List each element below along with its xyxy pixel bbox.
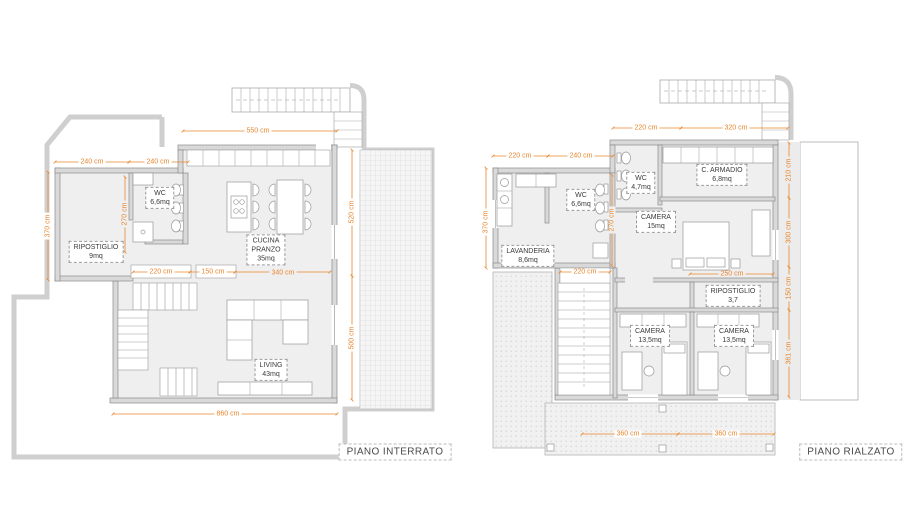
room-name: CAMERA — [635, 327, 665, 336]
room-name: LIVING — [260, 361, 283, 370]
room-label-camera-left: CAMERA 13,5mq — [630, 325, 670, 347]
room-name: RIPOSTIGLIO — [711, 287, 756, 296]
dimension-label: 270 cm — [122, 201, 129, 228]
plan-title-right: PIANO RIALZATO — [799, 444, 902, 461]
right-balcony — [800, 142, 858, 400]
room-area: 8,6mq — [506, 256, 549, 265]
room-area: 9mq — [74, 252, 119, 261]
dimension-label: 550 cm — [245, 128, 272, 135]
dimension-label: 370 cm — [45, 213, 52, 240]
left-external-stair — [232, 86, 364, 149]
dimension-label: 220 cm — [148, 269, 175, 276]
dimension-label: 150 cm — [200, 269, 227, 276]
room-label-camera-main: CAMERA 15mq — [636, 211, 676, 233]
room-label-wc-left: WC 6,6mq — [145, 187, 174, 209]
plan-title-left: PIANO INTERRATO — [339, 444, 452, 461]
dimension-label: 320 cm — [723, 125, 750, 132]
room-name: C. ARMADIO — [701, 166, 742, 175]
floor-plan-canvas: RIPOSTIGLIO 9mq WC 6,6mq CUCINA PRANZO 3… — [0, 0, 920, 517]
dimension-label: 150 cm — [786, 275, 793, 302]
dimension-label: 270 cm — [609, 207, 616, 234]
dimension-label: 240 cm — [145, 159, 172, 166]
room-label-ripostiglio-right: RIPOSTIGLIO 3,7 — [706, 285, 761, 307]
dimension-label: 250 cm — [719, 271, 746, 278]
room-name: WC — [631, 174, 650, 183]
room-area: 3,7 — [711, 296, 756, 305]
dimension-label: 240 cm — [568, 153, 595, 160]
dimension-label: 361 cm — [786, 340, 793, 367]
room-area: 15mq — [641, 222, 671, 231]
room-label-armadio: C. ARMADIO 6,8mq — [696, 164, 747, 186]
left-terrace — [360, 150, 432, 409]
room-area: 4,7mq — [631, 183, 650, 192]
room-area: 43mq — [260, 370, 283, 379]
room-label-wc-top: WC 4,7mq — [626, 172, 655, 194]
dimension-label: 210 cm — [786, 157, 793, 184]
dimension-label: 360 cm — [713, 431, 740, 438]
room-name: CUCINA PRANZO — [251, 236, 280, 254]
right-internal-stair — [558, 268, 610, 395]
room-label-living: LIVING 43mq — [255, 359, 288, 381]
room-label-cucina: CUCINA PRANZO 35mq — [246, 234, 285, 265]
dimension-label: 240 cm — [79, 159, 106, 166]
room-area: 35mq — [251, 255, 280, 264]
room-label-ripostiglio-left: RIPOSTIGLIO 9mq — [69, 241, 124, 263]
room-label-wc-small: WC 6,6mq — [566, 189, 595, 211]
room-name: CAMERA — [719, 327, 749, 336]
floor-plan-drawing — [0, 0, 920, 517]
dimension-label: 860 cm — [215, 411, 242, 418]
room-name: CAMERA — [641, 213, 671, 222]
dimension-label: 220 cm — [633, 125, 660, 132]
dimension-label: 360 cm — [615, 431, 642, 438]
dimension-label: 340 cm — [270, 270, 297, 277]
dimension-label: 300 cm — [786, 219, 793, 246]
dimension-label: 220 cm — [507, 153, 534, 160]
room-area: 6,8mq — [701, 175, 742, 184]
room-name: RIPOSTIGLIO — [74, 243, 119, 252]
room-name: WC — [571, 191, 590, 200]
room-label-lavanderia: LAVANDERIA 8,6mq — [501, 245, 554, 267]
armadio-furniture — [663, 147, 773, 163]
dimension-label: 370 cm — [483, 209, 490, 236]
room-name: LAVANDERIA — [506, 247, 549, 256]
room-area: 13,5mq — [719, 336, 749, 345]
dimension-label: 220 cm — [572, 269, 599, 276]
room-area: 13,5mq — [635, 336, 665, 345]
room-label-camera-right: CAMERA 13,5mq — [714, 325, 754, 347]
room-name: WC — [150, 189, 169, 198]
dimension-label: 500 cm — [349, 325, 356, 352]
dimension-label: 520 cm — [349, 199, 356, 226]
room-area: 6,6mq — [150, 198, 169, 207]
room-area: 6,6mq — [571, 200, 590, 209]
